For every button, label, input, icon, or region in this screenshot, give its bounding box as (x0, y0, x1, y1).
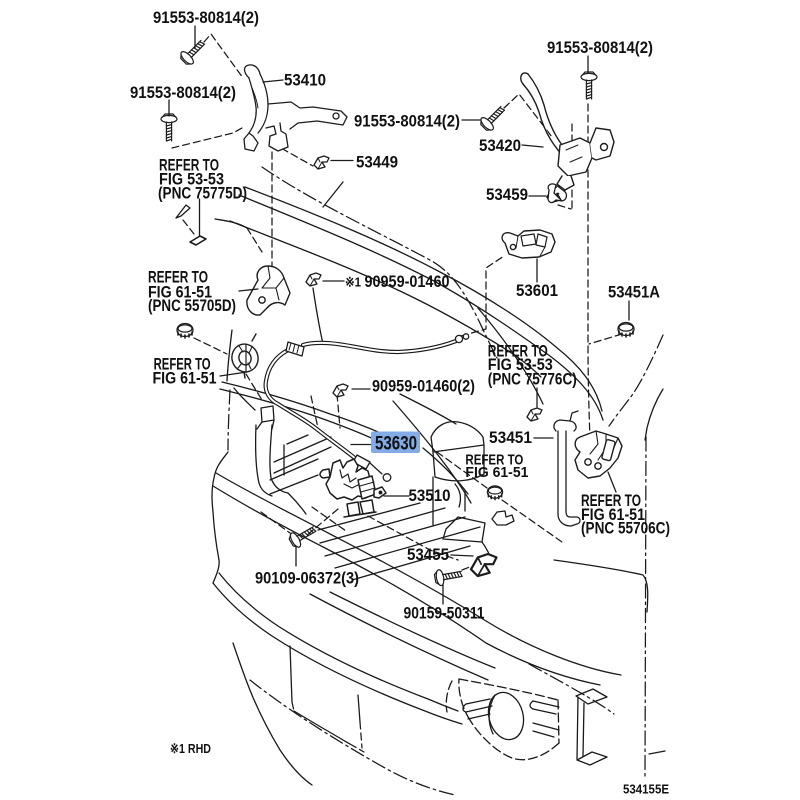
svg-text:(PNC 55706C): (PNC 55706C) (581, 519, 670, 538)
svg-text:(PNC 75776C): (PNC 75776C) (488, 369, 577, 388)
svg-text:※1: ※1 (345, 275, 361, 290)
svg-text:53420: 53420 (479, 136, 521, 155)
svg-text:534155E: 534155E (623, 782, 669, 797)
svg-text:53449: 53449 (356, 153, 398, 172)
svg-text:91553-80814(2): 91553-80814(2) (153, 8, 259, 27)
svg-text:53455: 53455 (407, 545, 449, 564)
svg-text:90959-01460: 90959-01460 (365, 272, 450, 291)
svg-text:90159-50311: 90159-50311 (404, 604, 485, 623)
svg-text:53510: 53510 (409, 486, 451, 505)
svg-text:90959-01460(2): 90959-01460(2) (372, 377, 475, 396)
svg-text:53410: 53410 (284, 71, 326, 90)
svg-text:53630: 53630 (375, 434, 417, 455)
svg-text:(PNC 75775D): (PNC 75775D) (158, 184, 247, 203)
svg-text:53451A: 53451A (608, 283, 660, 302)
svg-text:91553-80814(2): 91553-80814(2) (130, 83, 236, 102)
svg-text:FIG 61-51: FIG 61-51 (465, 464, 528, 481)
svg-text:53601: 53601 (516, 281, 558, 300)
svg-text:(PNC 55705D): (PNC 55705D) (148, 296, 236, 315)
svg-text:91553-80814(2): 91553-80814(2) (547, 38, 653, 57)
svg-text:53451: 53451 (489, 428, 532, 447)
svg-text:FIG 61-51: FIG 61-51 (153, 369, 217, 388)
svg-text:90109-06372(3): 90109-06372(3) (255, 569, 359, 588)
svg-text:53459: 53459 (486, 185, 528, 204)
svg-text:91553-80814(2): 91553-80814(2) (354, 112, 460, 131)
svg-text:※1 RHD: ※1 RHD (170, 741, 211, 756)
